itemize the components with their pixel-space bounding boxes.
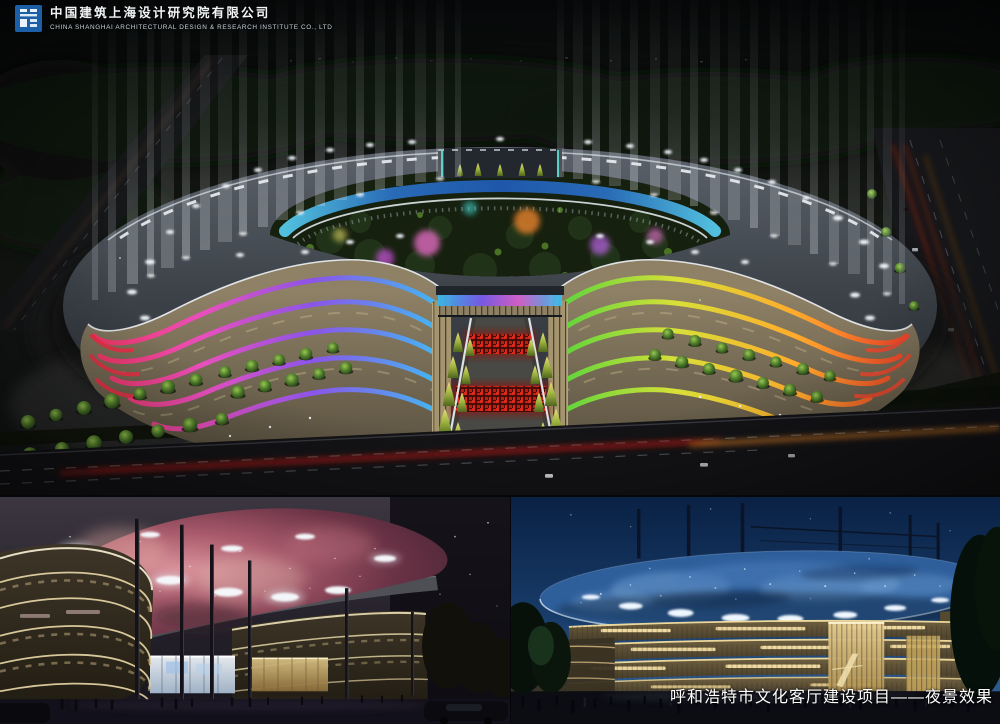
glass-lobby: [150, 656, 235, 694]
presentation-board: 中国建筑上海设计研究院有限公司 CHINA SHANGHAI ARCHITECT…: [0, 0, 1000, 724]
ground-view-nebula-rendering: [0, 497, 510, 724]
left-curved-building: [0, 544, 153, 705]
parked-car-left: [0, 703, 50, 723]
vignette: [0, 0, 1000, 495]
project-caption: 呼和浩特市文化客厅建设项目——夜景效果: [670, 683, 993, 707]
parked-car-right: [424, 701, 508, 724]
company-name-en: CHINA SHANGHAI ARCHITECTURAL DESIGN & RE…: [50, 24, 332, 31]
company-name-zh: 中国建筑上海设计研究院有限公司: [50, 5, 332, 22]
main-aerial-rendering: [0, 0, 1000, 495]
company-logo-icon: [15, 5, 42, 32]
warm-glass-hall: [252, 658, 328, 692]
company-header: 中国建筑上海设计研究院有限公司 CHINA SHANGHAI ARCHITECT…: [15, 5, 332, 32]
